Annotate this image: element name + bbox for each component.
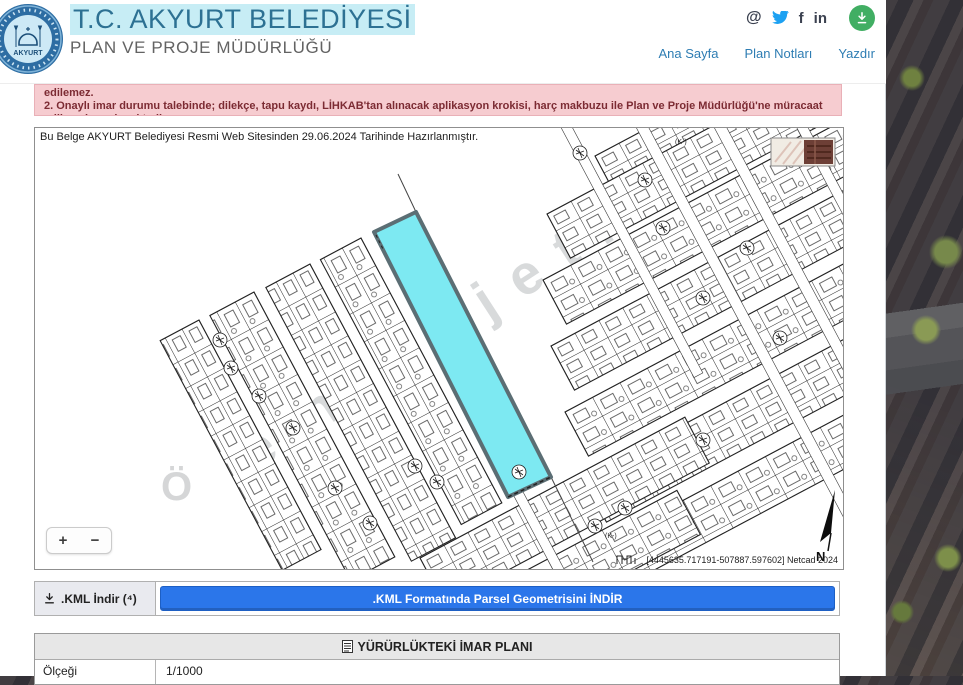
page-title: T.C. AKYURT BELEDİYESİ — [70, 4, 415, 35]
imar-table-header: YÜRÜRLÜKTEKİ İMAR PLANI — [35, 634, 839, 660]
map-zoom-control: + − — [46, 527, 112, 554]
parcel-map[interactable]: emlakjet.com Ö — [34, 127, 844, 570]
linkedin-icon[interactable]: in — [814, 10, 827, 27]
page-content: AKYURT T.C. AKYURT BELEDİYESİ PLAN VE PR… — [0, 0, 886, 676]
map-notice-text: Bu Belge AKYURT Belediyesi Resmi Web Sit… — [40, 131, 478, 143]
kml-download-section: .KML İndir (⁴) .KML Formatında Parsel Ge… — [34, 581, 840, 616]
imar-plan-table: YÜRÜRLÜKTEKİ İMAR PLANI Ölçeği 1/1000 — [34, 633, 840, 685]
coordinates-text: [4445635.717191-507887.597602] Netcad 20… — [646, 555, 838, 565]
zoom-out-button[interactable]: − — [79, 528, 111, 553]
header-titles: T.C. AKYURT BELEDİYESİ PLAN VE PROJE MÜD… — [70, 4, 415, 58]
document-icon — [342, 640, 353, 653]
scroll-download-button[interactable] — [849, 5, 875, 31]
download-arrow-icon — [855, 11, 869, 25]
map-label-k2: (K-) — [675, 139, 687, 146]
table-cell-label: Ölçeği — [35, 660, 156, 684]
warning-alert: edilemez. 2. Onaylı imar durumu talebind… — [34, 84, 842, 116]
scale-bar-icon — [616, 553, 642, 565]
email-at-icon[interactable]: @ — [746, 9, 762, 27]
table-row: Ölçeği 1/1000 — [35, 660, 839, 684]
map-inset-overview — [771, 138, 835, 166]
alert-line-2: 2. Onaylı imar durumu talebinde; dilekçe… — [44, 100, 832, 116]
kml-download-button[interactable]: .KML Formatında Parsel Geometrisini İNDİ… — [160, 586, 835, 611]
header-right: @ f in Ana Sayfa Plan Notları — [658, 5, 875, 61]
watermark-letter: Ö — [161, 464, 192, 509]
kml-download-label[interactable]: .KML İndir (⁴) — [35, 582, 156, 615]
facebook-icon[interactable]: f — [799, 10, 804, 27]
municipality-logo-seal[interactable]: AKYURT — [0, 3, 64, 75]
twitter-icon[interactable] — [772, 11, 789, 26]
kml-label-text: .KML İndir (⁴) — [61, 592, 137, 606]
imar-table-title: YÜRÜRLÜKTEKİ İMAR PLANI — [358, 640, 533, 654]
nav-yazdir[interactable]: Yazdır — [838, 46, 875, 61]
main-nav: Ana Sayfa Plan Notları Yazdır — [658, 46, 875, 61]
svg-text:AKYURT: AKYURT — [13, 50, 43, 57]
page-subtitle: PLAN VE PROJE MÜDÜRLÜĞÜ — [70, 38, 415, 58]
site-header: AKYURT T.C. AKYURT BELEDİYESİ PLAN VE PR… — [0, 0, 886, 84]
kml-button-wrap: .KML Formatında Parsel Geometrisini İNDİ… — [156, 582, 839, 615]
nav-plan-notlari[interactable]: Plan Notları — [744, 46, 812, 61]
map-label-k: (K-) — [605, 533, 617, 540]
zoom-in-button[interactable]: + — [47, 528, 79, 553]
social-icons: @ f in — [658, 5, 875, 31]
map-coordinates: [4445635.717191-507887.597602] Netcad 20… — [616, 553, 838, 565]
table-cell-value: 1/1000 — [156, 660, 839, 684]
alert-line-1: edilemez. — [44, 87, 832, 100]
download-icon — [43, 592, 56, 605]
cadastral-map-drawing: emlakjet.com Ö — [35, 128, 843, 569]
logo-graphic: AKYURT — [0, 3, 64, 75]
nav-ana-sayfa[interactable]: Ana Sayfa — [658, 46, 718, 61]
